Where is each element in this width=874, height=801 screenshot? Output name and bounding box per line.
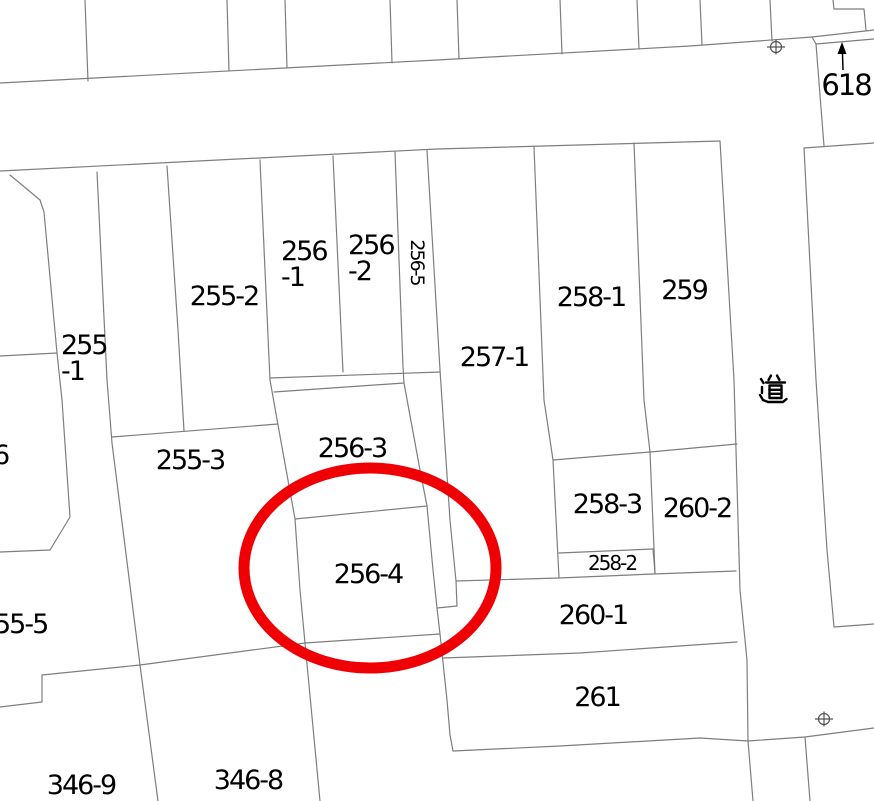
parcel-label-259: 259 bbox=[661, 278, 707, 304]
parcel-label-255-3: 255-3 bbox=[156, 448, 224, 474]
parcel-label-55-5: 55-5 bbox=[0, 612, 47, 638]
parcel-label-256-5: 256-5 bbox=[404, 239, 430, 284]
parcel-label-346-9: 346-9 bbox=[47, 773, 115, 799]
parcel-label-6: 6 bbox=[0, 443, 8, 469]
parcel-label-258-3: 258-3 bbox=[573, 492, 641, 518]
parcel-label-260-2: 260-2 bbox=[663, 496, 731, 522]
parcel-label-258-2: 258-2 bbox=[588, 550, 636, 576]
parcel-label-255-1: 255 -1 bbox=[61, 333, 107, 385]
parcel-label-618: 618 bbox=[821, 72, 870, 98]
parcel-label-257-1: 257-1 bbox=[460, 345, 528, 371]
parcel-label-256-3: 256-3 bbox=[318, 436, 386, 462]
parcel-label-260-1: 260-1 bbox=[559, 603, 627, 629]
parcel-label-256-4: 256-4 bbox=[334, 562, 402, 588]
labels-layer: 618255 -1255-2256 -1256 -2256-5257-1258-… bbox=[0, 0, 874, 801]
parcel-label-256-1: 256 -1 bbox=[281, 239, 327, 291]
parcel-label-346-8: 346-8 bbox=[214, 768, 282, 794]
parcel-label-261: 261 bbox=[574, 685, 620, 711]
cadastral-map: 618255 -1255-2256 -1256 -2256-5257-1258-… bbox=[0, 0, 874, 801]
parcel-label-256-2: 256 -2 bbox=[348, 233, 394, 285]
parcel-label-255-2: 255-2 bbox=[190, 284, 258, 310]
parcel-label-258-1: 258-1 bbox=[557, 285, 625, 311]
